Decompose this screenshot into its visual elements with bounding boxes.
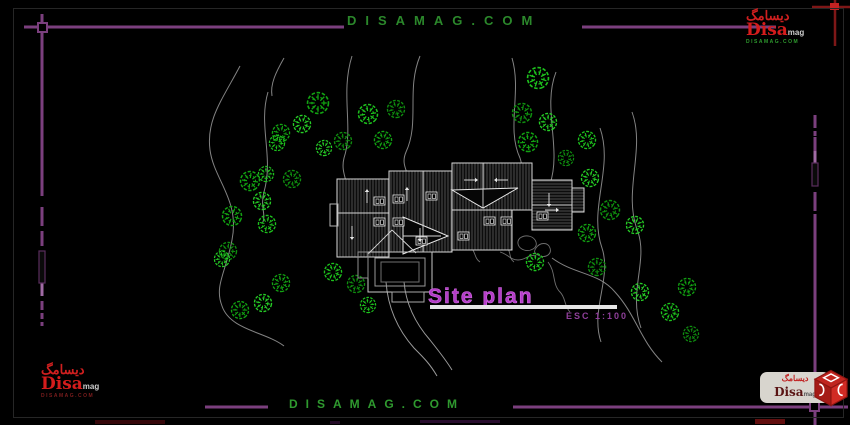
tree-symbol: [344, 272, 367, 295]
tree-symbol: [269, 121, 293, 145]
roof-window-pane: [491, 219, 494, 224]
roof-window-pane: [400, 197, 403, 202]
logo-url-text: DISAMAG.COM: [41, 394, 99, 399]
roof-window-pane: [400, 220, 403, 225]
tree-symbol: [315, 139, 333, 157]
isa-cube-logo-icon: [812, 369, 850, 407]
building-roof-plan: [330, 163, 584, 302]
tree-symbol: [280, 167, 304, 191]
plan-scale-label: ESC 1:100: [566, 311, 628, 321]
tree-symbol: [228, 298, 252, 322]
frame-dash-outline: [812, 163, 818, 186]
disamag-logo-bottom-left[interactable]: دیسامگ Disamag DISAMAG.COM: [41, 363, 99, 399]
tree-symbol: [577, 223, 598, 244]
roof-plane: [452, 210, 512, 250]
tree-symbol: [676, 276, 698, 298]
tree-symbol: [220, 204, 244, 228]
roof-window-pane: [376, 220, 379, 225]
stream-line: [518, 236, 536, 251]
tree-symbol: [355, 101, 382, 128]
tree-symbol: [269, 135, 285, 151]
tree-symbol: [322, 261, 345, 284]
tree-symbol: [385, 98, 406, 119]
tree-symbol: [659, 301, 681, 323]
roof-window-pane: [508, 219, 511, 224]
tree-symbol: [556, 148, 576, 168]
tree-symbol: [253, 293, 273, 313]
logo-brand-text: Disamag: [746, 22, 804, 39]
disamag-logo-top-right[interactable]: دیسامگ Disamag DISAMAG.COM: [746, 9, 804, 45]
badge-brand-text: Disamag: [774, 385, 816, 399]
watermark-top: DISAMAG.COM: [347, 13, 541, 28]
tree-symbol: [258, 166, 273, 181]
tree-symbol: [255, 212, 279, 236]
roof-window-pane: [539, 214, 542, 219]
roof-window-pane: [544, 214, 547, 219]
roof-window-pane: [423, 239, 426, 244]
tree-symbol: [271, 273, 291, 293]
roof-window-pane: [433, 194, 436, 199]
tree-symbol: [251, 190, 272, 211]
tree-symbol: [680, 323, 701, 344]
tree-symbol: [291, 113, 313, 135]
stream-line: [535, 244, 551, 257]
contour-line: [272, 58, 284, 96]
roof-window-pane: [376, 199, 379, 204]
tree-symbol: [624, 214, 646, 236]
roof-window-pane: [460, 234, 463, 239]
stream-line: [500, 252, 536, 260]
roof-plane: [572, 188, 584, 212]
roof-window-pane: [428, 194, 431, 199]
site-plan-drawing: [0, 0, 850, 425]
tree-symbol: [588, 258, 606, 276]
tree-symbol: [308, 93, 329, 114]
title-underline-bar: [430, 305, 617, 309]
tree-symbol: [372, 129, 395, 152]
logo-url-text: DISAMAG.COM: [746, 40, 804, 45]
contour-line: [404, 56, 420, 180]
contour-line: [598, 128, 605, 342]
tree-symbol: [628, 280, 652, 304]
tree-symbol: [331, 129, 355, 153]
tree-symbol: [518, 132, 539, 153]
contour-line: [343, 56, 352, 198]
tree-symbol: [219, 242, 237, 260]
roof-window-pane: [381, 199, 384, 204]
roof-window-pane: [503, 219, 506, 224]
frame-red-node: [830, 3, 839, 10]
tree-symbol: [524, 64, 552, 92]
tree-symbol: [523, 250, 547, 274]
frame-corner-node: [38, 23, 47, 32]
deck-outline: [381, 262, 419, 282]
cad-site-plan-page: DISAMAG.COM DISAMAG.COM Site plan ESC 1:…: [0, 0, 850, 425]
watermark-bottom: DISAMAG.COM: [289, 397, 465, 411]
disamag-badge-bottom-right[interactable]: دیسامگ Disamag: [760, 369, 850, 407]
roof-window-pane: [381, 220, 384, 225]
tree-symbol: [580, 168, 601, 189]
tree-symbol: [360, 297, 377, 314]
frame-dash-outline: [39, 251, 45, 283]
roof-window-pane: [395, 197, 398, 202]
logo-brand-text: Disamag: [41, 376, 99, 393]
roof-window-pane: [395, 220, 398, 225]
roof-window-pane: [465, 234, 468, 239]
tree-symbol: [597, 197, 623, 223]
roof-window-pane: [486, 219, 489, 224]
tree-symbol: [575, 128, 598, 151]
tree-symbol: [536, 110, 560, 134]
tree-symbol: [237, 168, 264, 195]
